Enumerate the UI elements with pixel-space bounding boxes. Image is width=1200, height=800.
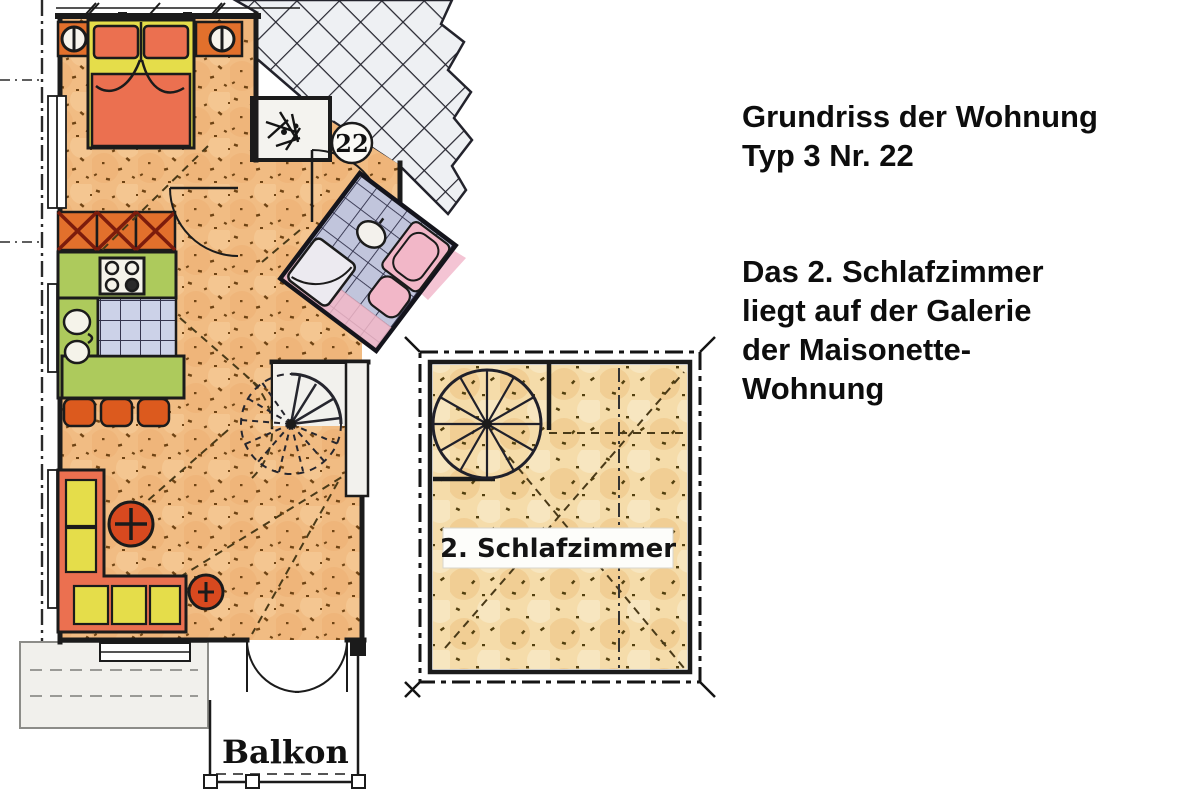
nightstand-left (58, 22, 90, 56)
railing-post (204, 775, 217, 788)
unit-number-badge: 22 (332, 123, 372, 163)
kitchen-floor-tiles (98, 298, 176, 356)
sofa-cushion (66, 480, 96, 526)
sofa-cushion (66, 528, 96, 572)
wardrobe (58, 212, 175, 250)
side-table (189, 575, 223, 609)
wall-mark (118, 12, 127, 19)
railing-post (352, 775, 365, 788)
unit-number-label: 22 (335, 129, 368, 158)
gallery-spiral-staircase (433, 370, 541, 478)
annotation-text-block: Grundriss der Wohnung Typ 3 Nr. 22 Das 2… (742, 58, 1162, 447)
wall-column (350, 641, 366, 656)
railing-post (246, 775, 259, 788)
pillow (94, 26, 138, 58)
gallery-floor-plan: 2. Schlafzimmer (405, 337, 715, 697)
sofa-cushion (74, 586, 108, 624)
nightstand-right (196, 22, 242, 56)
gallery-room-label: 2. Schlafzimmer (440, 528, 676, 568)
balcony-label: Balkon (222, 733, 349, 771)
main-floor-plan: 22 (0, 0, 472, 788)
blanket (92, 74, 190, 146)
scanned-floor-plan-page: 22 (0, 0, 1200, 800)
double-bed (88, 20, 194, 148)
dining-chairs (64, 399, 169, 426)
annotation-body: Das 2. Schlafzimmer liegt auf der Galeri… (742, 252, 1162, 408)
sofa-cushion (150, 586, 180, 624)
annotation-heading: Grundriss der Wohnung Typ 3 Nr. 22 (742, 97, 1162, 175)
wall-mark (183, 12, 192, 19)
pillow (144, 26, 188, 58)
gallery-floor (433, 365, 687, 669)
sofa-cushion (112, 586, 146, 624)
balcony-door (247, 640, 347, 692)
site-boundary-lines (0, 0, 42, 694)
stair-shaft-wall (346, 362, 368, 496)
kitchen (58, 252, 184, 426)
stove (100, 258, 144, 294)
coffee-table (109, 502, 153, 546)
gallery-room-label-text: 2. Schlafzimmer (440, 534, 676, 564)
bottom-window-bay (100, 643, 190, 661)
